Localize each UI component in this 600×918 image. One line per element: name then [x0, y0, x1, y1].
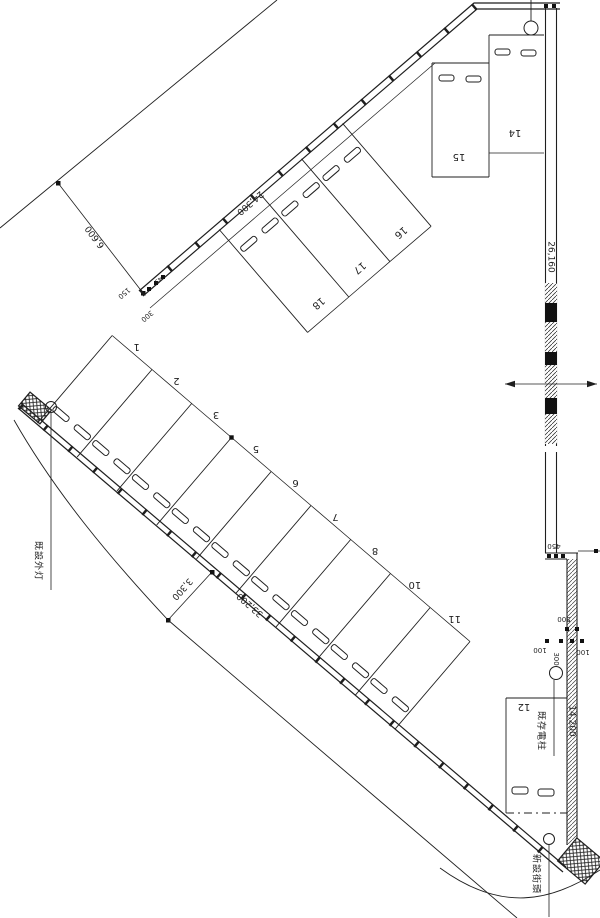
wheel-stop	[73, 424, 91, 441]
stall-label: 2	[173, 375, 179, 386]
wheel-stop	[302, 182, 320, 199]
wheel-stop	[312, 628, 330, 645]
wheel-stop	[330, 644, 348, 661]
wall-hatch-strip	[567, 559, 577, 845]
dim-300-right: 300	[552, 652, 560, 665]
wall-black-segment	[545, 352, 557, 365]
arrow-head-right-icon	[587, 381, 597, 388]
wheel-stop	[240, 235, 258, 252]
dim-300-top: 300	[139, 309, 154, 324]
dim-dot	[561, 554, 565, 558]
wheel-stop	[113, 458, 131, 475]
dim-dot	[210, 570, 215, 575]
dim-33200: 33,200	[235, 590, 266, 618]
dim-dot	[594, 549, 598, 553]
stall-label-12: 12	[518, 701, 531, 712]
label-existing-pole: 既存電柱	[536, 711, 548, 751]
stall-label-15: 15	[453, 151, 466, 162]
stall-label: 7	[332, 511, 338, 522]
dim-6600: 6,600	[83, 223, 107, 250]
stall-divider	[316, 574, 391, 661]
lower-wall-ticks	[20, 406, 564, 870]
dim-dot	[547, 554, 551, 558]
pole-circle-top	[524, 21, 538, 35]
wheel-stop	[261, 217, 279, 234]
stall-divider	[260, 194, 349, 297]
wall-black-segment	[545, 398, 557, 414]
existing-light-group: 既設外灯	[18, 392, 56, 590]
wheel-stop	[521, 50, 536, 56]
stall-label: 18	[310, 295, 327, 312]
stall-label: 5	[253, 443, 259, 454]
dim-100-left: 100	[533, 646, 546, 654]
wheel-stop	[439, 75, 454, 81]
stalls-top-row: 181716	[219, 123, 431, 332]
dim-14200: 14,200	[567, 705, 577, 737]
dim-dot	[559, 639, 563, 643]
dim-dot	[56, 181, 61, 186]
wheel-stop	[495, 49, 510, 55]
wheel-stop	[466, 76, 481, 82]
dim-150: 150	[116, 286, 131, 301]
stall-divider	[38, 336, 113, 423]
wheel-stop	[322, 165, 340, 182]
wheel-stop	[131, 474, 149, 491]
stall-label: 8	[372, 545, 378, 556]
top-wall-outer	[139, 3, 560, 291]
dim-3300: 3,300	[169, 576, 194, 602]
wall-hatch-segment	[545, 322, 557, 352]
dim-6600-group: 6,600	[56, 181, 146, 296]
wheel-stop	[290, 610, 308, 627]
wheel-stop	[192, 526, 210, 543]
site-plan-svg: 6,600 24,300 150 300 45 26,160	[0, 0, 600, 918]
wheel-stop	[370, 678, 388, 695]
dim-24300: 24,300	[234, 189, 265, 217]
stall-divider	[302, 159, 390, 262]
wheel-stop	[281, 200, 299, 217]
stall-label: 10	[409, 579, 422, 590]
dim-26160: 26,160	[546, 241, 556, 273]
label-existing-light: 既設外灯	[33, 541, 45, 581]
stall-divider	[356, 608, 431, 695]
stall-divider	[77, 370, 152, 457]
wheel-stop	[512, 787, 528, 794]
top-wall-site-line	[150, 63, 435, 308]
stall-head-line	[308, 226, 432, 332]
curb-boundary-path	[14, 420, 517, 918]
pole-circle-middle	[550, 667, 563, 680]
dim-dot	[554, 554, 558, 558]
stall-label: 17	[351, 259, 368, 276]
dim-500: 500	[557, 615, 570, 623]
label-new-light: 新設街頭	[531, 854, 543, 894]
stalls-diagonal-row: 12356781011	[38, 336, 471, 729]
stall-divider	[219, 230, 307, 333]
wheel-stop	[171, 508, 189, 525]
stall-divider	[197, 472, 272, 559]
wheel-stop	[232, 560, 250, 577]
stall-label: 6	[292, 477, 298, 488]
wheel-stop	[211, 542, 229, 559]
right-wall-lower	[545, 553, 584, 845]
dim-dot	[570, 639, 574, 643]
dim-dot	[580, 639, 584, 643]
lower-wall	[18, 403, 566, 872]
stall-label-14: 14	[509, 127, 522, 138]
wall-post-dot	[544, 4, 548, 8]
stall-label: 3	[213, 409, 219, 420]
stall-label: 16	[392, 224, 409, 241]
pole-circle-bottom	[544, 834, 555, 845]
wall-post-dot	[147, 287, 151, 291]
wall-post-dot	[552, 4, 556, 8]
dim-dot	[229, 435, 233, 439]
wheel-stop	[153, 492, 171, 509]
lower-wall-line	[21, 403, 566, 867]
wall-black-segment	[545, 303, 557, 322]
dim-dot	[565, 627, 569, 631]
wheel-stop	[343, 146, 361, 163]
stall-divider	[236, 506, 311, 593]
wheel-stop	[391, 696, 409, 713]
dim-dot	[575, 627, 579, 631]
stall-divider	[117, 404, 192, 491]
hatched-box-icon	[18, 392, 51, 424]
stall-divider	[276, 540, 351, 627]
dim-100-right: 100	[576, 648, 589, 656]
stall-head-line	[112, 336, 470, 642]
right-wall-upper	[545, 8, 557, 553]
road-boundary-line	[0, 0, 277, 228]
top-wall-inner	[143, 9, 560, 296]
hatched-box-icon	[558, 838, 600, 884]
dim-3300-group: 3,300	[166, 570, 215, 623]
wheel-stop	[351, 662, 369, 679]
stall-divider	[157, 438, 232, 525]
wheel-stop	[92, 440, 110, 457]
stall-label: 1	[134, 341, 140, 352]
stall-divider	[343, 123, 432, 226]
arrow-head-left-icon	[505, 381, 515, 388]
wall-hatch-segment	[545, 365, 557, 398]
dim-dot	[545, 639, 549, 643]
wheel-stop	[251, 576, 269, 593]
wall-hatch-segment	[545, 414, 557, 444]
wall-hatch-segment	[545, 283, 557, 303]
wheel-stop	[538, 789, 554, 796]
dim-450: 450	[547, 542, 560, 550]
stall-label: 11	[448, 613, 461, 624]
stalls-top-right: 15 14	[432, 35, 544, 177]
wheel-stop	[272, 594, 290, 611]
site-plan-page: 6,600 24,300 150 300 45 26,160	[0, 0, 600, 918]
wheel-stop	[52, 406, 70, 423]
stall-divider	[395, 642, 470, 729]
